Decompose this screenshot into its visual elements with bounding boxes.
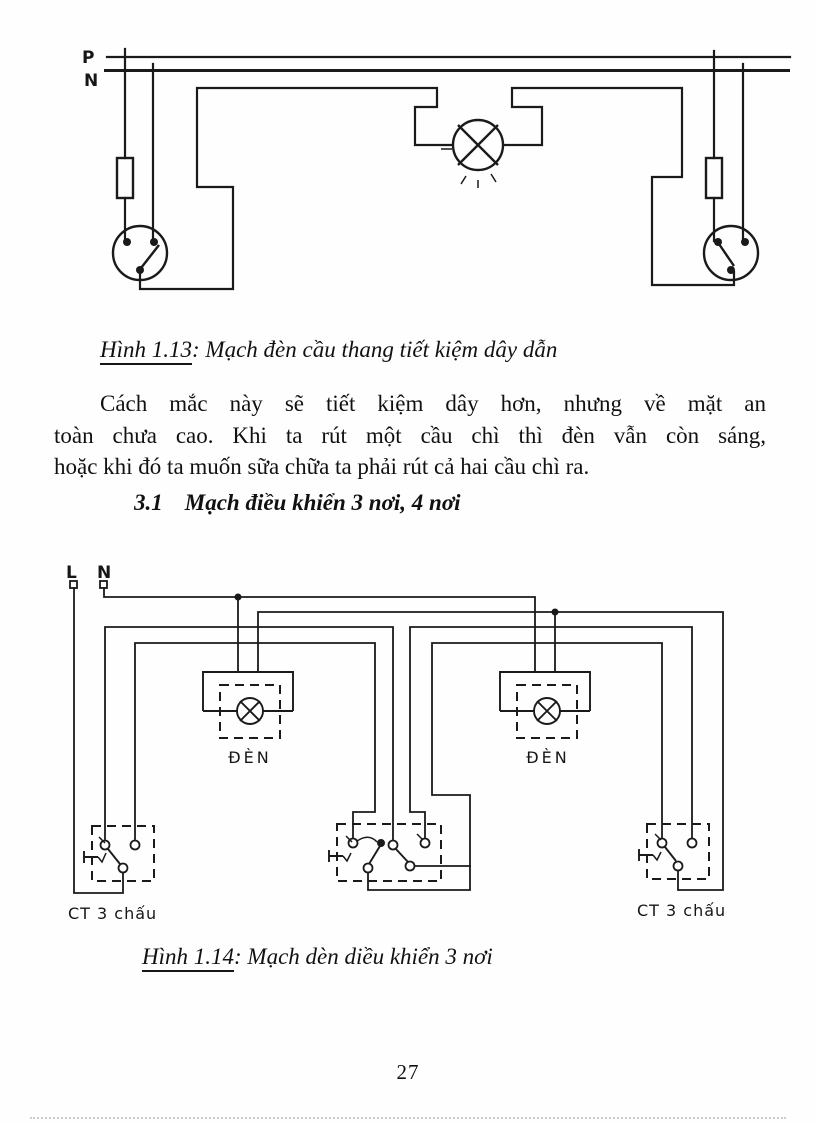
n-line-label-2: N	[97, 563, 111, 583]
page-number: 27	[0, 1060, 816, 1085]
figure-1-13-caption-text: : Mạch đèn cầu thang tiết kiệm dây dẫn	[192, 337, 557, 362]
figure-1-13-diagram: P N	[0, 30, 816, 320]
figure-1-14-ref: Hình 1.14	[142, 944, 234, 972]
figure-1-13-caption: Hình 1.13: Mạch đèn cầu thang tiết kiệm …	[100, 337, 557, 363]
body-paragraph: Cách mắc này sẽ tiết kiệm dây hơn, nhưng…	[54, 388, 766, 483]
switch-right-label: CT 3 chấu	[637, 901, 726, 920]
book-page: P N	[0, 0, 816, 1123]
l-terminal	[70, 581, 77, 588]
lamp-right-label: ĐÈN	[526, 748, 569, 767]
n-line-label: N	[84, 71, 98, 91]
fuse-left	[117, 49, 133, 241]
power-lines	[104, 57, 790, 71]
lamp-left-label: ĐÈN	[228, 748, 271, 767]
l-line-label: L	[66, 563, 77, 583]
scan-edge-artifact	[30, 1117, 786, 1119]
fuse-right	[706, 51, 722, 241]
figure-1-13-ref: Hình 1.13	[100, 337, 192, 365]
paragraph-line: Cách mắc này sẽ tiết kiệm dây hơn, nhưng…	[54, 388, 766, 420]
n-terminal	[100, 581, 107, 588]
switch-left-3way	[84, 826, 154, 881]
figure-1-14-diagram: L N ĐÈN	[0, 550, 816, 930]
p-line-label: P	[82, 48, 94, 68]
lamp-left: ĐÈN	[203, 672, 293, 767]
wire-left-to-lamp	[140, 88, 452, 289]
lamp-right: ĐÈN	[500, 672, 590, 767]
switch-right-3way	[639, 824, 709, 879]
section-title: Mạch điều khiển 3 nơi, 4 nơi	[185, 490, 461, 515]
section-number: 3.1	[134, 490, 163, 515]
figure-1-14-caption: Hình 1.14: Mạch dèn diều khiển 3 nơi	[142, 944, 493, 970]
switch-left-label: CT 3 chấu	[68, 904, 157, 923]
paragraph-line: toàn chưa cao. Khi ta rút một cầu chì th…	[54, 420, 766, 452]
section-heading: 3.1Mạch điều khiển 3 nơi, 4 nơi	[134, 490, 461, 516]
lamp-symbol	[441, 120, 503, 188]
figure-1-14-caption-text: : Mạch dèn diều khiển 3 nơi	[234, 944, 493, 969]
supply-wires	[74, 588, 723, 893]
three-way-switch-right	[704, 226, 758, 280]
paragraph-line: hoặc khi đó ta muốn sữa chữa ta phải rút…	[54, 451, 766, 483]
wire-lamp-to-right	[504, 88, 734, 285]
